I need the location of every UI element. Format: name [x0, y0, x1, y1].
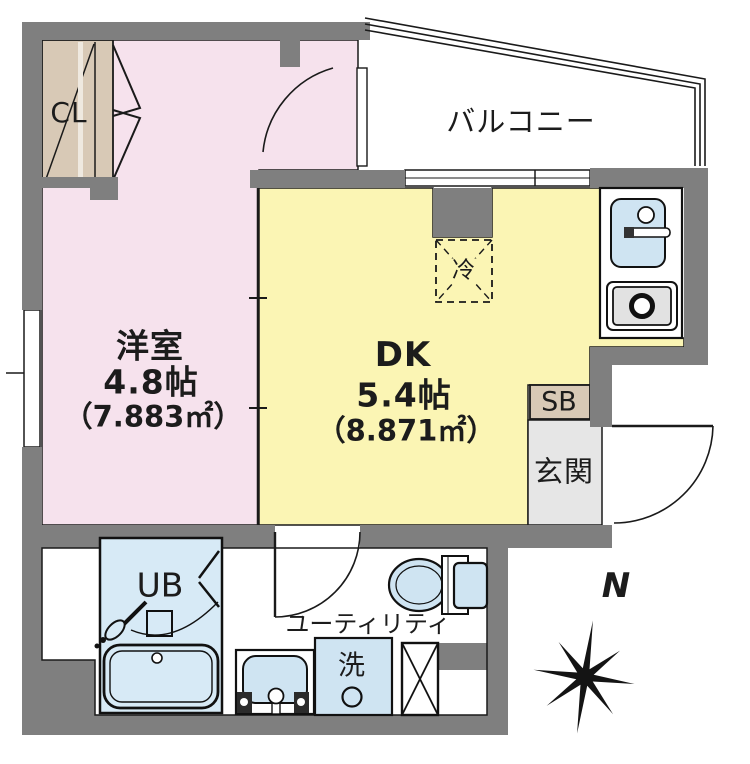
washbasin-icon — [236, 650, 314, 714]
dk-room-size: 5.4帖 — [356, 379, 451, 412]
west-window — [24, 310, 40, 447]
stove-icon — [607, 282, 677, 330]
unit-bath-label: UB — [137, 569, 184, 602]
washer-label: 洗 — [338, 653, 366, 680]
compass-north-label: N — [602, 569, 630, 603]
unit-bath — [95, 538, 223, 713]
western-room-area: （7.883㎡） — [64, 403, 243, 432]
shoe-box-label: SB — [541, 389, 577, 416]
utility-label: ユーティリティ — [285, 612, 450, 636]
western-room-size: 4.8帖 — [103, 366, 198, 399]
compass-star-icon — [526, 613, 643, 740]
kitchen-sink-icon — [611, 199, 670, 267]
western-room-name: 洋室 — [116, 330, 184, 363]
entrance-label: 玄関 — [534, 458, 594, 487]
refrigerator-label: 冷 — [450, 259, 478, 284]
balcony-railing — [365, 18, 705, 166]
utility-door — [275, 532, 360, 617]
balcony-label: バルコニー — [446, 108, 595, 137]
toilet-icon — [389, 556, 487, 614]
dk-room-name: DK — [375, 338, 432, 372]
entrance-door — [612, 426, 713, 523]
kitchen-unit — [600, 188, 682, 338]
dk-room-area: （8.871㎡） — [317, 417, 496, 446]
floor-plan: バルコニー 洋室 4.8帖 （7.883㎡） DK 5.4帖 （8.871㎡） … — [0, 0, 750, 764]
pipe-shaft-icon — [402, 643, 438, 715]
closet-label: CL — [50, 99, 87, 127]
